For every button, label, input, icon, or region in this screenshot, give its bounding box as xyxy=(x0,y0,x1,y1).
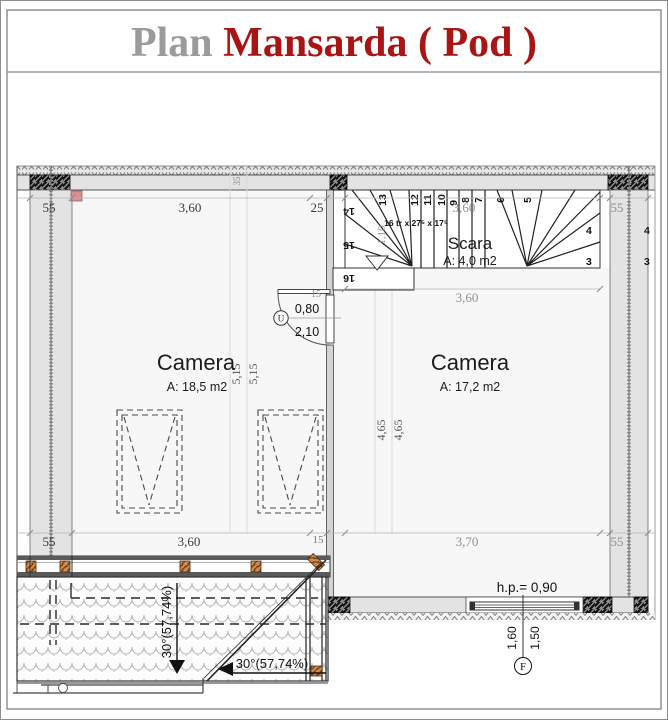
door-width: 0,80 xyxy=(295,302,319,316)
rafter-block xyxy=(26,561,36,572)
slope-label-horizontal: 30°(57,74%) xyxy=(236,656,308,671)
rafter-block-bottom xyxy=(311,666,322,676)
dim-bot-left-room: 3,60 xyxy=(178,534,201,549)
step-16: 16 xyxy=(343,272,355,284)
door-dim-a: 15 xyxy=(311,289,321,300)
dim-right-room-width: 3,60 xyxy=(456,290,479,305)
column-top-middle xyxy=(330,175,347,190)
door-leaf-closed xyxy=(326,295,334,343)
step-4: 4 xyxy=(586,225,592,237)
step-11: 11 xyxy=(422,194,434,205)
outside-step-3: 3 xyxy=(644,256,650,268)
floor-plan-drawing: Plan Mansarda ( Pod ) U 0,80 xyxy=(0,0,668,720)
axis-marker-label: F xyxy=(520,661,526,673)
left-room-area: A: 18,5 m2 xyxy=(167,380,227,394)
left-wall xyxy=(30,166,72,578)
window-dim-a: 1,60 xyxy=(505,626,519,650)
step-10: 10 xyxy=(436,194,448,206)
dim-bot-segment: 15 xyxy=(313,534,325,546)
door-tag: U xyxy=(278,314,285,324)
page-title: Plan Mansarda ( Pod ) xyxy=(131,20,537,66)
dim-top-offset: 35 xyxy=(232,176,242,186)
dim-top-right-wall: 55 xyxy=(611,200,624,215)
stair-area: A: 4,0 m2 xyxy=(443,254,497,268)
step-12: 12 xyxy=(409,194,421,206)
dim-top-stair: 3,60 xyxy=(453,200,476,215)
door-height: 2,10 xyxy=(295,325,319,339)
stair-name: Scara xyxy=(448,234,493,253)
window xyxy=(470,602,579,610)
downspout-circle xyxy=(59,684,68,693)
right-room-area: A: 17,2 m2 xyxy=(440,380,500,394)
step-15: 15 xyxy=(343,239,355,251)
rafter-block xyxy=(180,561,190,572)
slope-label-vertical: 30°(57,74%) xyxy=(159,586,174,658)
dim-left-height-2: 5,15 xyxy=(246,364,260,385)
dim-bot-right-wall: 55 xyxy=(611,534,624,549)
dim-bot-left-wall: 55 xyxy=(43,534,56,549)
door-leaf-open xyxy=(278,290,330,294)
dim-right-height-1: 4,65 xyxy=(374,420,388,441)
chimney-marker xyxy=(71,191,82,201)
stair-width-dim: 1,10 xyxy=(376,225,388,245)
stair-spec: 16 tr x 27⁵ x 17⁵ xyxy=(384,218,448,228)
step-3: 3 xyxy=(586,256,592,268)
roof-plan: 30°(57,74%) 30°(57,74%) xyxy=(13,554,330,693)
top-wall xyxy=(17,166,655,190)
partition-wall xyxy=(327,190,334,597)
step-14: 14 xyxy=(343,205,355,217)
dim-right-height-2: 4,65 xyxy=(391,420,405,441)
outside-step-4: 4 xyxy=(644,225,650,237)
page-title-main: Mansarda ( Pod ) xyxy=(223,20,537,66)
rafter-block xyxy=(60,561,70,572)
right-room-name: Camera xyxy=(431,350,510,375)
window-dim-b: 1,50 xyxy=(528,626,542,650)
eave-band xyxy=(17,554,330,577)
floor-plan-page: Plan Mansarda ( Pod ) U 0,80 xyxy=(0,0,668,720)
bottom-wall xyxy=(322,597,655,620)
dim-top-left-wall: 55 xyxy=(43,200,56,215)
insulation-zigzag xyxy=(322,613,655,620)
page-title-prefix: Plan xyxy=(131,20,223,66)
dim-top-segment: 25 xyxy=(311,200,324,215)
dim-bot-right-room: 3,70 xyxy=(456,534,479,549)
dim-top-left-room: 3,60 xyxy=(179,200,202,215)
parapet-label: h.p.= 0,90 xyxy=(497,580,557,595)
step-13: 13 xyxy=(377,194,389,206)
rafter-block xyxy=(251,561,261,572)
left-room-name: Camera xyxy=(157,350,236,375)
